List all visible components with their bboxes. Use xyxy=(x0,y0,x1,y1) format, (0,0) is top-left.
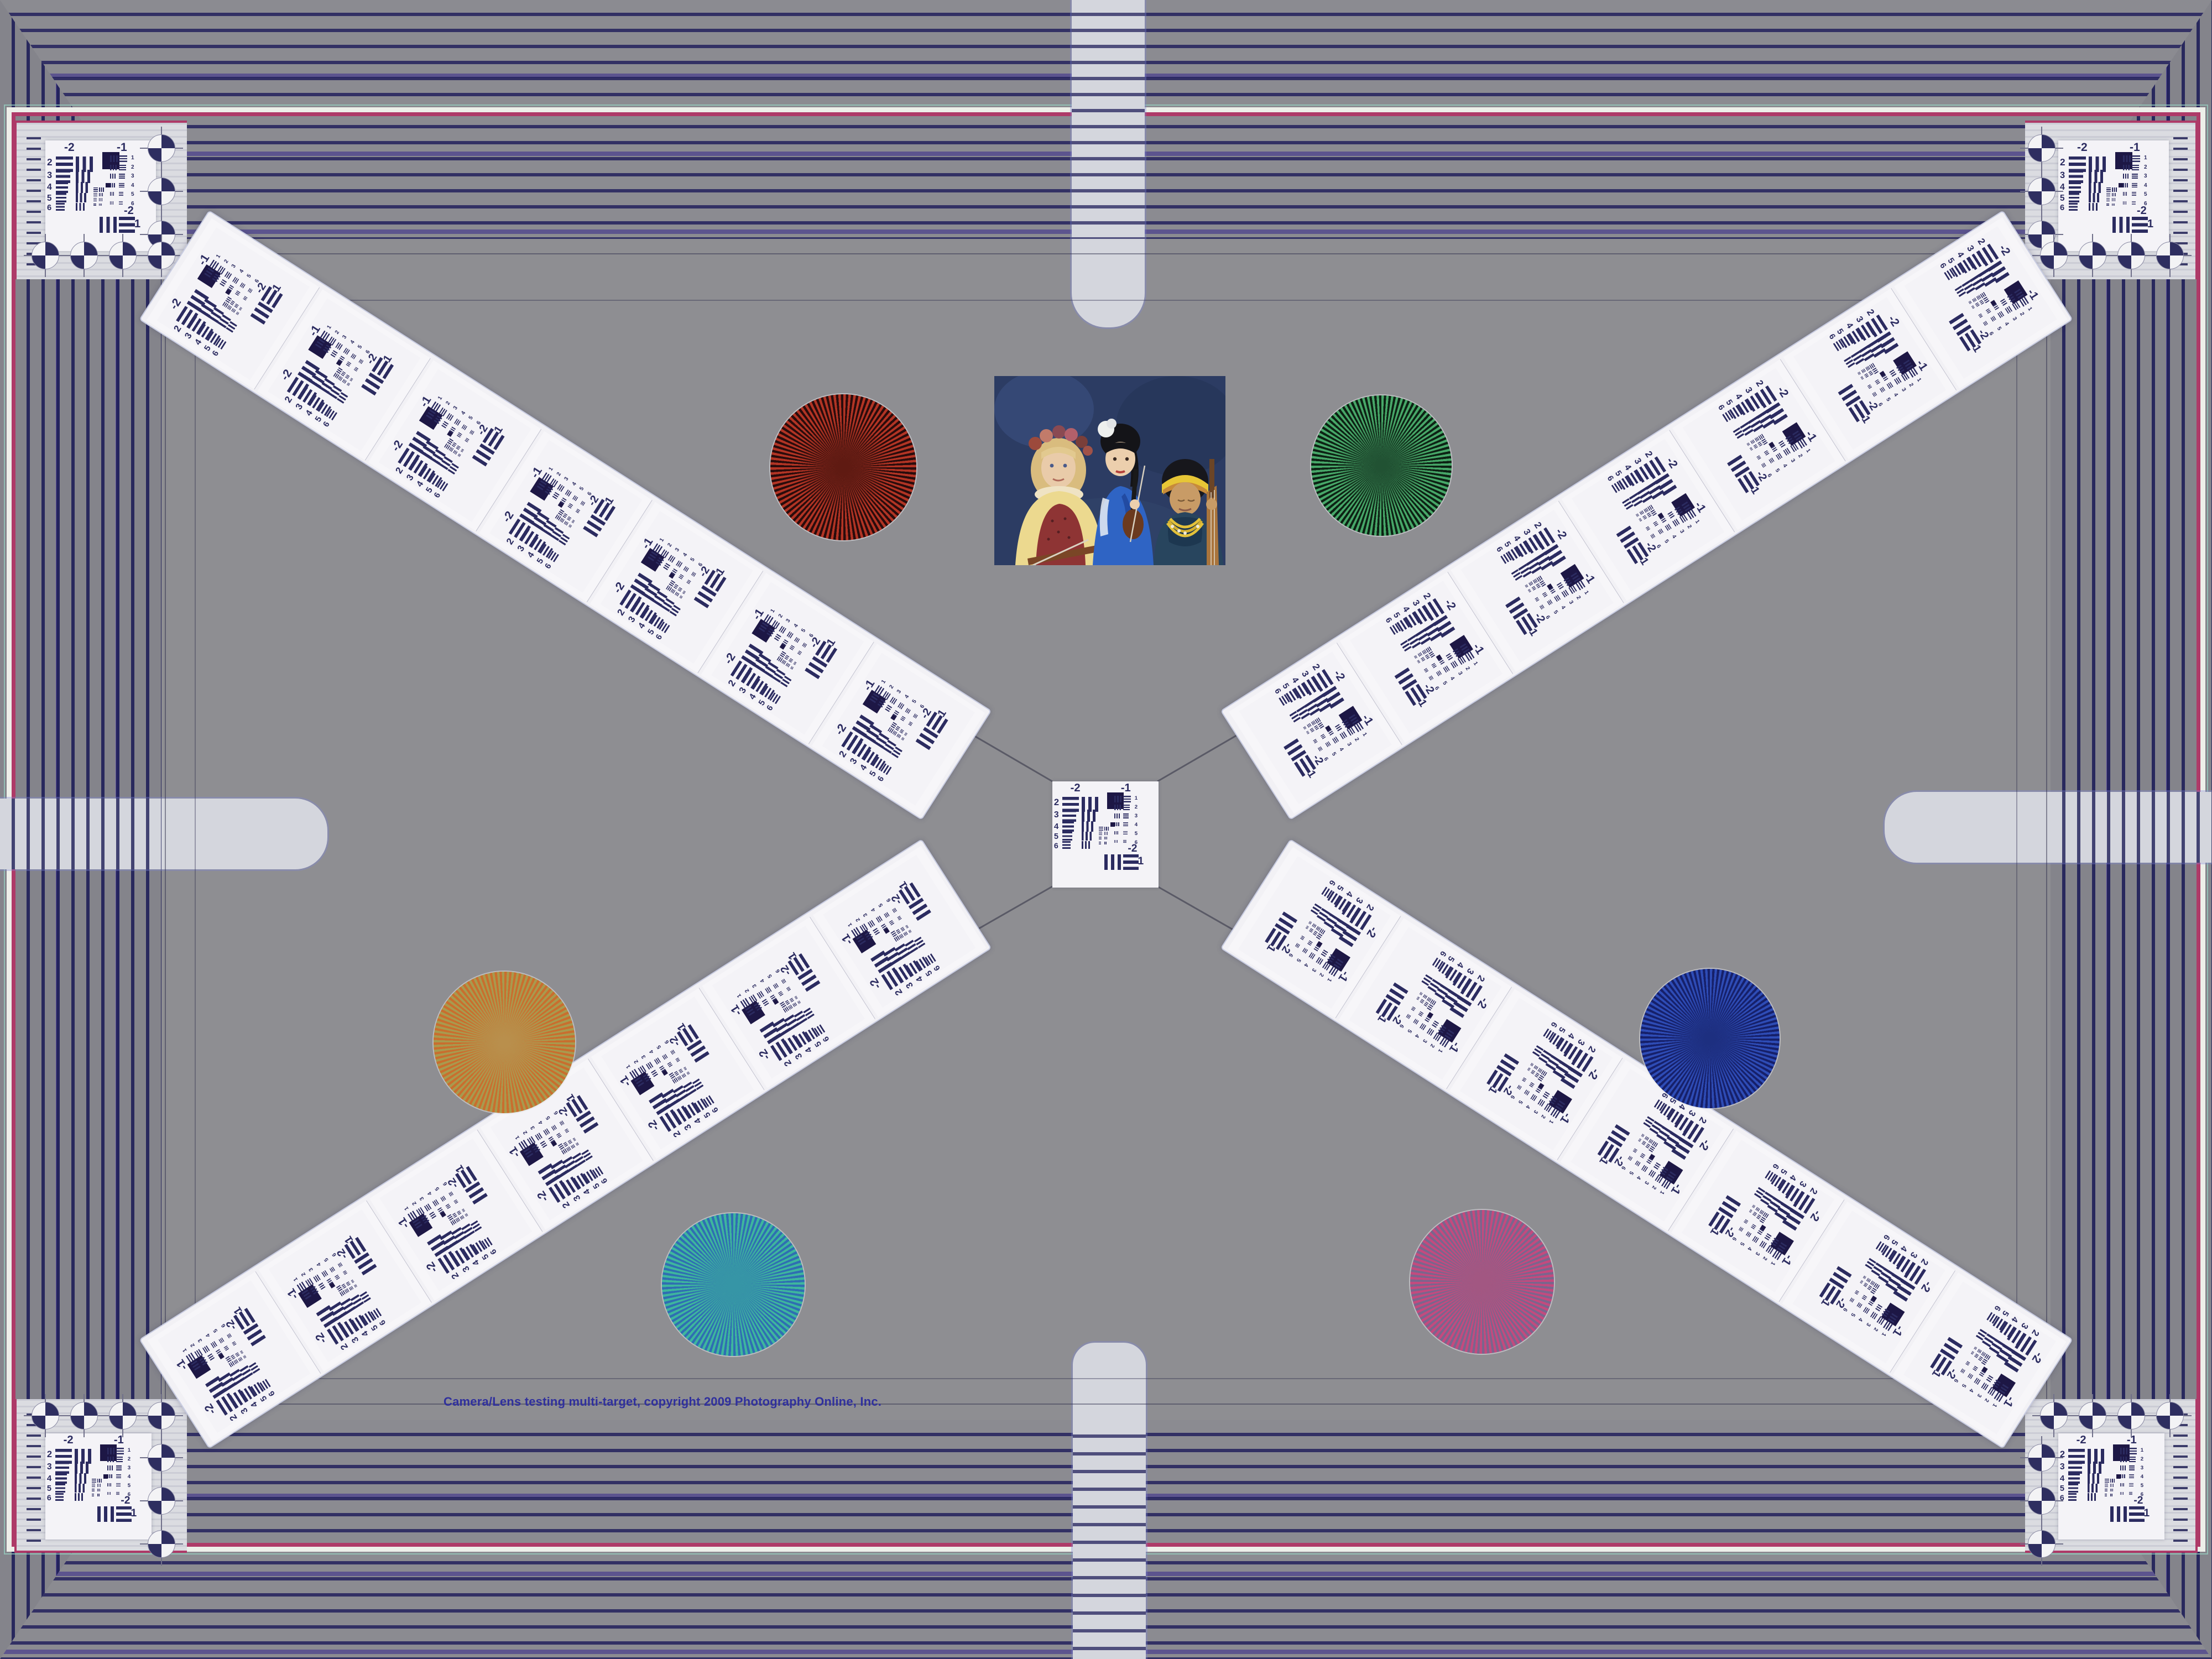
chart-number: 2 xyxy=(1353,737,1359,742)
horizontal-bars xyxy=(225,272,232,279)
usaf-resolution-chart: -2-123456123456-21 xyxy=(45,1433,152,1540)
horizontal-bars xyxy=(1339,732,1347,739)
vertical-bars xyxy=(2123,155,2131,162)
chart-number: 5 xyxy=(435,1186,441,1191)
chart-number: 5 xyxy=(1960,1383,1966,1388)
horizontal-bars xyxy=(56,170,70,183)
horizontal-bars xyxy=(1872,392,1877,397)
vertical-bars xyxy=(354,367,358,372)
chart-number: 4 xyxy=(870,907,877,912)
chart-number: 3 xyxy=(849,757,859,766)
horizontal-bars xyxy=(580,501,585,506)
vertical-bars xyxy=(452,442,457,447)
chart-number: 5 xyxy=(925,969,934,977)
chart-number: -2 xyxy=(1586,1066,1601,1081)
vertical-bars xyxy=(341,371,346,376)
vertical-bars xyxy=(1527,1068,1530,1072)
chart-number: 2 xyxy=(1054,798,1059,807)
vertical-bars xyxy=(240,1350,243,1354)
ruler-tick xyxy=(2173,1455,2188,1458)
ruler-tick xyxy=(27,221,41,223)
vertical-bars xyxy=(2110,1489,2114,1491)
vertical-bars xyxy=(76,170,90,183)
chart-number: 4 xyxy=(649,1048,655,1054)
vertical-bars xyxy=(1974,1354,1979,1358)
chart-number: 3 xyxy=(564,476,570,482)
chart-number: -2 xyxy=(64,1434,74,1446)
vertical-bars xyxy=(97,1484,101,1487)
vertical-bars xyxy=(1760,1217,1766,1223)
chart-number: 5 xyxy=(579,486,585,492)
chart-number: 3 xyxy=(896,689,902,695)
vertical-bars xyxy=(1335,724,1342,731)
chart-number: 5 xyxy=(592,1182,601,1190)
chart-number: 2 xyxy=(1644,450,1655,459)
vertical-bars xyxy=(235,290,241,296)
chart-number: 2 xyxy=(1919,1257,1930,1266)
chart-number: 3 xyxy=(419,1196,425,1201)
chart-number: 4 xyxy=(760,978,766,983)
horizontal-bars xyxy=(892,908,897,913)
chart-number: 4 xyxy=(859,764,869,773)
chart-number: 2 xyxy=(1865,307,1876,317)
chart-number: 5 xyxy=(47,1485,51,1493)
vertical-bars xyxy=(76,203,85,211)
horizontal-bars xyxy=(790,666,794,670)
vertical-bars xyxy=(107,1465,113,1470)
vertical-bars xyxy=(99,204,102,206)
chart-number: 3 xyxy=(1965,244,1975,253)
horizontal-bars xyxy=(1316,957,1323,964)
horizontal-bars xyxy=(1419,992,1422,996)
horizontal-bars xyxy=(344,1288,349,1293)
horizontal-bars xyxy=(2105,1494,2107,1496)
chart-number: -2 xyxy=(1808,1208,1823,1223)
vertical-bars xyxy=(1978,314,1983,319)
horizontal-bars xyxy=(1427,1028,1434,1036)
chart-number: 5 xyxy=(1614,469,1623,477)
vertical-bars xyxy=(243,296,247,301)
registration-circle xyxy=(109,1402,137,1430)
horizontal-bars xyxy=(1123,831,1128,835)
chart-number: 4 xyxy=(1968,1387,1974,1393)
vertical-bars xyxy=(107,1492,111,1495)
ruler-tick xyxy=(27,169,41,171)
horizontal-bars xyxy=(679,595,682,599)
chart-number: 4 xyxy=(1338,747,1344,752)
chart-number: 2 xyxy=(1872,1327,1879,1332)
chart-number: -2 xyxy=(1997,243,2012,258)
registration-circle xyxy=(70,242,98,269)
ruler-tick xyxy=(27,148,41,150)
vertical-bars xyxy=(904,732,907,736)
horizontal-bars xyxy=(1752,1204,1755,1208)
vertical-bars xyxy=(107,1448,114,1454)
ruler-tick xyxy=(2173,158,2188,160)
horizontal-bars xyxy=(670,588,675,593)
vertical-bars xyxy=(1653,521,1658,527)
chart-number: 3 xyxy=(350,1335,361,1344)
registration-circle-face xyxy=(2028,1487,2056,1515)
test-photo-three-musicians xyxy=(994,376,1225,565)
chart-number: 3 xyxy=(1457,671,1463,676)
chart-number: 3 xyxy=(47,1463,52,1472)
vertical-bars xyxy=(99,198,102,201)
chart-number: 1 xyxy=(625,1063,632,1069)
vertical-bars xyxy=(1667,512,1674,519)
chart-number: 1 xyxy=(1658,1190,1665,1195)
horizontal-bars xyxy=(2068,1493,2077,1501)
vertical-bars xyxy=(786,987,791,992)
chart-number: -2 xyxy=(2030,1350,2045,1365)
horizontal-bars xyxy=(684,566,689,572)
chart-number: 3 xyxy=(453,405,459,411)
chart-number: 3 xyxy=(231,264,237,269)
chart-number: 2 xyxy=(1365,902,1376,912)
registration-circle-face xyxy=(2079,1402,2106,1430)
chart-number: 4 xyxy=(748,692,758,701)
chart-number: 4 xyxy=(1746,1245,1752,1251)
vertical-bars xyxy=(1750,447,1753,451)
chart-number: -2 xyxy=(500,509,516,524)
chart-number: 2 xyxy=(671,1129,682,1139)
vertical-bars xyxy=(100,217,117,233)
vertical-bars xyxy=(1557,582,1564,589)
horizontal-bars xyxy=(238,1357,243,1361)
vertical-bars xyxy=(453,1199,458,1204)
horizontal-bars xyxy=(560,518,565,523)
horizontal-bars xyxy=(1642,1165,1648,1172)
chart-number: 3 xyxy=(1865,1322,1871,1327)
chart-number: 6 xyxy=(1771,1162,1780,1170)
horizontal-bars xyxy=(884,912,890,918)
horizontal-bars xyxy=(469,430,474,435)
chart-number: 5 xyxy=(2060,1485,2064,1493)
horizontal-bars xyxy=(792,1003,797,1007)
vertical-bars xyxy=(75,1493,83,1501)
chart-number: -1 xyxy=(1121,782,1131,794)
horizontal-bars xyxy=(1983,321,1988,326)
horizontal-bars xyxy=(1406,1014,1411,1019)
chart-number: 3 xyxy=(1054,811,1059,820)
chart-number: 6 xyxy=(1881,1233,1891,1241)
chart-number: 2 xyxy=(1475,974,1486,983)
horizontal-bars xyxy=(116,1492,120,1495)
horizontal-bars xyxy=(1776,453,1782,460)
chart-number: 2 xyxy=(334,330,340,335)
horizontal-bars xyxy=(116,1457,123,1462)
chart-number: 4 xyxy=(693,1117,703,1125)
vertical-bars xyxy=(2123,165,2130,171)
horizontal-bars xyxy=(1534,1065,1538,1070)
vertical-bars xyxy=(663,563,670,570)
horizontal-bars xyxy=(1672,519,1680,526)
vertical-bars xyxy=(556,1133,562,1138)
chart-number: 5 xyxy=(1995,326,2001,332)
vertical-bars xyxy=(674,1071,679,1076)
horizontal-bars xyxy=(2105,1489,2108,1491)
vertical-bars xyxy=(1114,796,1121,802)
chart-number: 4 xyxy=(1559,605,1566,611)
vertical-bars xyxy=(1861,1295,1867,1300)
chart-number: 4 xyxy=(427,1191,433,1196)
vertical-bars xyxy=(762,999,769,1006)
vertical-bars xyxy=(1754,445,1758,449)
chart-number: 4 xyxy=(131,183,134,189)
chart-number: 3 xyxy=(738,686,748,695)
vertical-bars xyxy=(110,183,115,187)
chart-number: 1 xyxy=(1361,732,1367,737)
chart-number: 4 xyxy=(1788,1173,1798,1182)
chart-number: 2 xyxy=(128,1457,131,1462)
vertical-bars xyxy=(900,729,904,733)
vertical-bars xyxy=(1975,302,1980,307)
chart-number: 3 xyxy=(627,615,638,624)
chart-number: 2 xyxy=(1651,1185,1657,1190)
horizontal-bars xyxy=(1123,840,1127,843)
ruler-tick xyxy=(2173,137,2188,139)
registration-circle-face xyxy=(148,242,175,269)
ruler-tick xyxy=(27,232,41,234)
chart-number: 4 xyxy=(682,552,688,558)
chart-number: -2 xyxy=(390,439,405,453)
center-resolution-chart: -2-123456123456-21 xyxy=(1052,781,1159,888)
vertical-bars xyxy=(2088,1462,2101,1474)
chart-number: 1 xyxy=(326,325,332,330)
chart-number: 2 xyxy=(190,1342,196,1348)
chart-number: 2 xyxy=(1587,1045,1598,1054)
vertical-bars xyxy=(1432,1020,1439,1027)
chart-number: -1 xyxy=(1669,1182,1684,1197)
chart-number: 4 xyxy=(637,622,647,630)
vertical-bars xyxy=(2120,1465,2126,1470)
chart-number: 4 xyxy=(2003,321,2009,327)
registration-circle-face xyxy=(2028,1444,2056,1472)
horizontal-bars xyxy=(2068,1484,2078,1493)
registration-circle xyxy=(2156,242,2184,269)
ruler-tick xyxy=(27,190,41,192)
vertical-bars xyxy=(110,155,118,162)
vertical-bars xyxy=(905,925,909,928)
horizontal-bars xyxy=(1530,1063,1533,1067)
horizontal-bars xyxy=(116,1483,121,1487)
horizontal-bars xyxy=(1960,1369,1965,1374)
vertical-bars xyxy=(2123,174,2128,179)
chart-number: 1 xyxy=(2141,1448,2143,1453)
horizontal-bars xyxy=(93,193,97,196)
chart-number: 2 xyxy=(1429,1043,1435,1048)
horizontal-bars xyxy=(354,1284,357,1288)
chart-number: -2 xyxy=(1442,597,1458,612)
vertical-bars xyxy=(1420,999,1425,1004)
chart-number: 3 xyxy=(1632,457,1643,466)
black-square xyxy=(2116,1474,2121,1479)
horizontal-bars xyxy=(454,419,461,425)
vertical-bars xyxy=(1865,373,1869,378)
chart-number: 3 xyxy=(2011,316,2017,322)
vertical-bars xyxy=(1642,1141,1646,1145)
horizontal-bars xyxy=(1985,1354,1991,1360)
vertical-bars xyxy=(2120,1483,2124,1487)
vertical-bars xyxy=(778,990,784,996)
vertical-bars xyxy=(2089,170,2103,183)
ruler-tick xyxy=(27,1477,41,1479)
vertical-bars xyxy=(2112,193,2116,196)
horizontal-bars xyxy=(56,182,68,193)
chart-number: 2 xyxy=(1761,1255,1767,1261)
vertical-bars xyxy=(1875,379,1880,385)
vertical-bars xyxy=(2112,204,2115,206)
chart-number: 6 xyxy=(544,562,554,571)
horizontal-bars xyxy=(788,1005,793,1010)
vertical-bars xyxy=(540,1140,547,1147)
registration-circle xyxy=(2117,242,2145,269)
horizontal-bars xyxy=(1990,316,1996,322)
vertical-bars xyxy=(1417,660,1420,664)
chart-number: 1 xyxy=(1583,590,1589,596)
horizontal-bars xyxy=(646,1062,654,1070)
chart-number: 3 xyxy=(675,547,681,553)
horizontal-bars xyxy=(1308,921,1312,925)
registration-circle-face xyxy=(70,242,98,269)
vertical-bars xyxy=(2089,203,2098,211)
horizontal-bars xyxy=(1756,1207,1760,1212)
chart-number: 4 xyxy=(47,1474,51,1483)
chart-number: 6 xyxy=(211,349,221,358)
chart-number: 4 xyxy=(239,269,245,274)
chart-number: 1 xyxy=(182,1347,188,1353)
chart-number: 2 xyxy=(1754,379,1765,388)
vertical-bars xyxy=(230,300,235,305)
horizontal-bars xyxy=(781,979,786,984)
chart-number: 4 xyxy=(1566,1031,1576,1040)
vertical-bars xyxy=(2088,1473,2099,1484)
chart-number: 5 xyxy=(1392,611,1401,619)
horizontal-bars xyxy=(1418,653,1422,657)
chart-number: 5 xyxy=(128,1483,131,1489)
chart-number: 4 xyxy=(1054,822,1058,831)
horizontal-bars xyxy=(1123,822,1128,827)
vertical-bars xyxy=(343,1270,347,1275)
chart-number: 3 xyxy=(1976,1392,1982,1398)
registration-circle xyxy=(148,1487,175,1515)
chart-number: 1 xyxy=(404,1206,410,1211)
vertical-bars xyxy=(900,716,906,721)
horizontal-bars xyxy=(1887,382,1893,389)
vertical-bars xyxy=(1532,586,1536,591)
vertical-bars xyxy=(908,721,912,726)
vertical-bars xyxy=(110,201,113,205)
chart-number: -2 xyxy=(2137,205,2147,216)
horizontal-bars xyxy=(2106,193,2110,196)
horizontal-bars xyxy=(1318,747,1323,752)
chart-number: 3 xyxy=(197,1337,204,1343)
chart-number: 5 xyxy=(1517,1099,1523,1104)
vertical-bars xyxy=(2112,217,2130,233)
vertical-bars xyxy=(1965,1361,1970,1366)
horizontal-bars xyxy=(2068,1473,2080,1484)
chart-number: 1 xyxy=(737,993,743,998)
horizontal-bars xyxy=(757,991,765,999)
horizontal-bars xyxy=(227,1333,232,1338)
chart-number: 2 xyxy=(505,536,516,546)
registration-circle-face xyxy=(109,242,137,269)
registration-circle xyxy=(32,1402,59,1430)
chart-number: 4 xyxy=(249,1400,259,1409)
horizontal-bars xyxy=(1864,1307,1870,1313)
horizontal-bars xyxy=(351,353,356,359)
chart-number: 1 xyxy=(2026,306,2032,312)
horizontal-bars xyxy=(1062,841,1071,849)
horizontal-bars xyxy=(2005,306,2012,314)
vertical-bars xyxy=(107,1474,112,1479)
horizontal-bars xyxy=(2068,1462,2082,1474)
vertical-bars xyxy=(1638,1139,1641,1142)
horizontal-bars xyxy=(227,305,232,310)
horizontal-bars xyxy=(1863,1275,1866,1279)
chart-number: 2 xyxy=(2141,1457,2143,1462)
vertical-bars xyxy=(1542,1091,1550,1098)
usaf-resolution-chart: -2-123456123456-21 xyxy=(2058,140,2169,251)
chart-number: -1 xyxy=(1447,1040,1463,1055)
horizontal-bars xyxy=(2106,198,2110,201)
chart-number: 5 xyxy=(1885,397,1891,403)
chart-number: 4 xyxy=(1733,392,1743,401)
vertical-bars xyxy=(774,634,781,641)
chart-number: 3 xyxy=(1310,967,1316,973)
horizontal-bars xyxy=(1062,832,1072,841)
horizontal-bars xyxy=(243,1355,246,1359)
horizontal-bars xyxy=(1312,924,1317,928)
vertical-bars xyxy=(331,350,338,357)
horizontal-bars xyxy=(691,572,696,577)
registration-circle-face xyxy=(2117,1402,2145,1430)
horizontal-bars xyxy=(913,713,918,718)
chart-number: -2 xyxy=(1886,314,1901,328)
horizontal-bars xyxy=(904,932,908,936)
chart-number: 1 xyxy=(293,1276,299,1282)
chart-number: 6 xyxy=(1327,878,1337,886)
ruler-tick xyxy=(27,1466,41,1468)
vertical-bars xyxy=(1986,309,1991,314)
vertical-bars xyxy=(684,1067,687,1071)
horizontal-bars xyxy=(342,379,347,384)
ruler-tick xyxy=(27,1540,41,1542)
ruler-tick xyxy=(2173,1508,2188,1510)
vertical-bars xyxy=(1307,940,1313,946)
vertical-bars xyxy=(1860,377,1864,380)
horizontal-bars xyxy=(1974,1347,1977,1350)
chart-number: 5 xyxy=(1446,954,1455,963)
chart-number: 4 xyxy=(128,1474,131,1480)
chart-number: 6 xyxy=(2060,204,2064,212)
chart-number: 2 xyxy=(394,466,405,475)
vertical-bars xyxy=(1104,837,1108,839)
horizontal-bars xyxy=(1451,661,1458,669)
ruler-tick xyxy=(2173,179,2188,181)
chart-number: 6 xyxy=(1549,1020,1558,1029)
vertical-bars xyxy=(895,726,900,731)
horizontal-bars xyxy=(330,1266,335,1272)
chart-number: -2 xyxy=(1919,1279,1934,1294)
chart-number: 5 xyxy=(247,274,253,279)
vertical-bars xyxy=(1446,653,1453,660)
chart-number: 2 xyxy=(556,471,562,477)
horizontal-bars xyxy=(566,1146,571,1151)
horizontal-bars xyxy=(1325,742,1331,748)
horizontal-bars xyxy=(1635,1160,1640,1166)
horizontal-bars xyxy=(55,1493,64,1501)
